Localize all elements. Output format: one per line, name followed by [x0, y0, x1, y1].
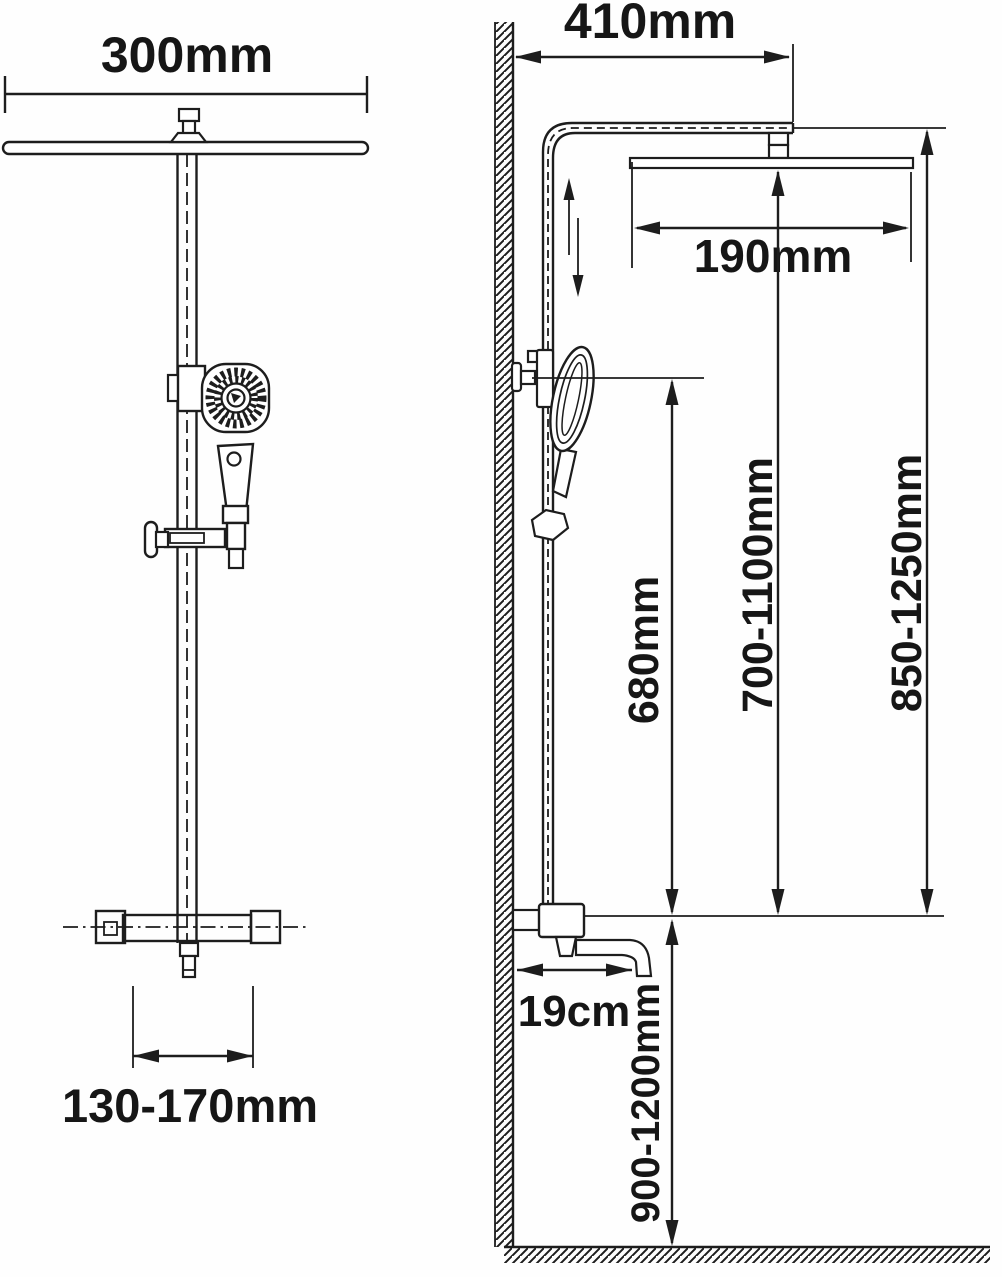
dim-wall-to-head: 410mm — [515, 0, 793, 122]
valve-bottom-outlet — [183, 956, 195, 977]
valve-span-label: 130-170mm — [62, 1079, 318, 1132]
slide-lock-lever — [532, 510, 568, 540]
valve-left-union-port — [104, 922, 117, 935]
dim-spout-reach: 19cm — [517, 964, 632, 1037]
ball-joint-base — [171, 133, 206, 142]
handle-lower — [227, 523, 245, 549]
head-plate-edge — [630, 158, 913, 168]
valve-bottom-nut — [180, 943, 198, 956]
bracket-height-label: 700-1100mm — [734, 457, 782, 713]
slide-bar-length-label: 680mm — [620, 576, 668, 724]
spout-reach-label: 19cm — [518, 987, 631, 1036]
front-slide-bar — [178, 154, 197, 977]
front-view: 300mm — [3, 27, 368, 1132]
hose-outlet — [229, 549, 243, 568]
valve-height-label: 900-1200mm — [624, 983, 668, 1223]
side-view: 410mm 190mm 680mm 700-1100mm — [495, 0, 990, 1263]
valve-wall-stem — [513, 910, 541, 930]
ball-joint-top — [179, 109, 199, 121]
valve-body-side — [539, 904, 584, 937]
updown-adjust-arrows — [564, 178, 584, 297]
dim-head-depth: 190mm — [632, 162, 911, 282]
wall-to-head-label: 410mm — [564, 0, 736, 49]
head-depth-label: 190mm — [694, 230, 853, 282]
side-wall — [495, 22, 513, 1247]
diagram-canvas: 300mm — [0, 0, 1002, 1277]
dim-valve-height: 900-1200mm — [624, 919, 679, 1246]
hand-shower-handle-side — [553, 449, 576, 497]
front-overhead-plate — [3, 109, 368, 154]
head-connector-lower — [769, 145, 788, 158]
side-hand-shower — [512, 343, 602, 540]
hose-nut — [223, 506, 248, 523]
handle-button — [228, 453, 241, 466]
slider-arm — [165, 529, 225, 547]
dim-slide-bar-length: 680mm — [620, 379, 679, 915]
dim-overhead-width: 300mm — [5, 27, 367, 113]
side-head-plate — [630, 133, 913, 168]
valve-outlet-nut — [556, 937, 576, 956]
head-height-label: 850-1250mm — [883, 454, 931, 712]
dim-valve-span: 130-170mm — [62, 986, 318, 1132]
side-valve — [513, 904, 651, 976]
lock-knob-stem — [156, 532, 168, 547]
side-floor — [504, 1247, 990, 1263]
wall-bracket-flange — [512, 363, 521, 391]
front-hand-shower — [145, 364, 269, 568]
dim-head-height: 850-1250mm — [883, 129, 934, 915]
head-connector-upper — [769, 133, 788, 145]
shower-dimension-diagram: 300mm — [0, 0, 1002, 1277]
overhead-width-label: 300mm — [101, 27, 273, 83]
